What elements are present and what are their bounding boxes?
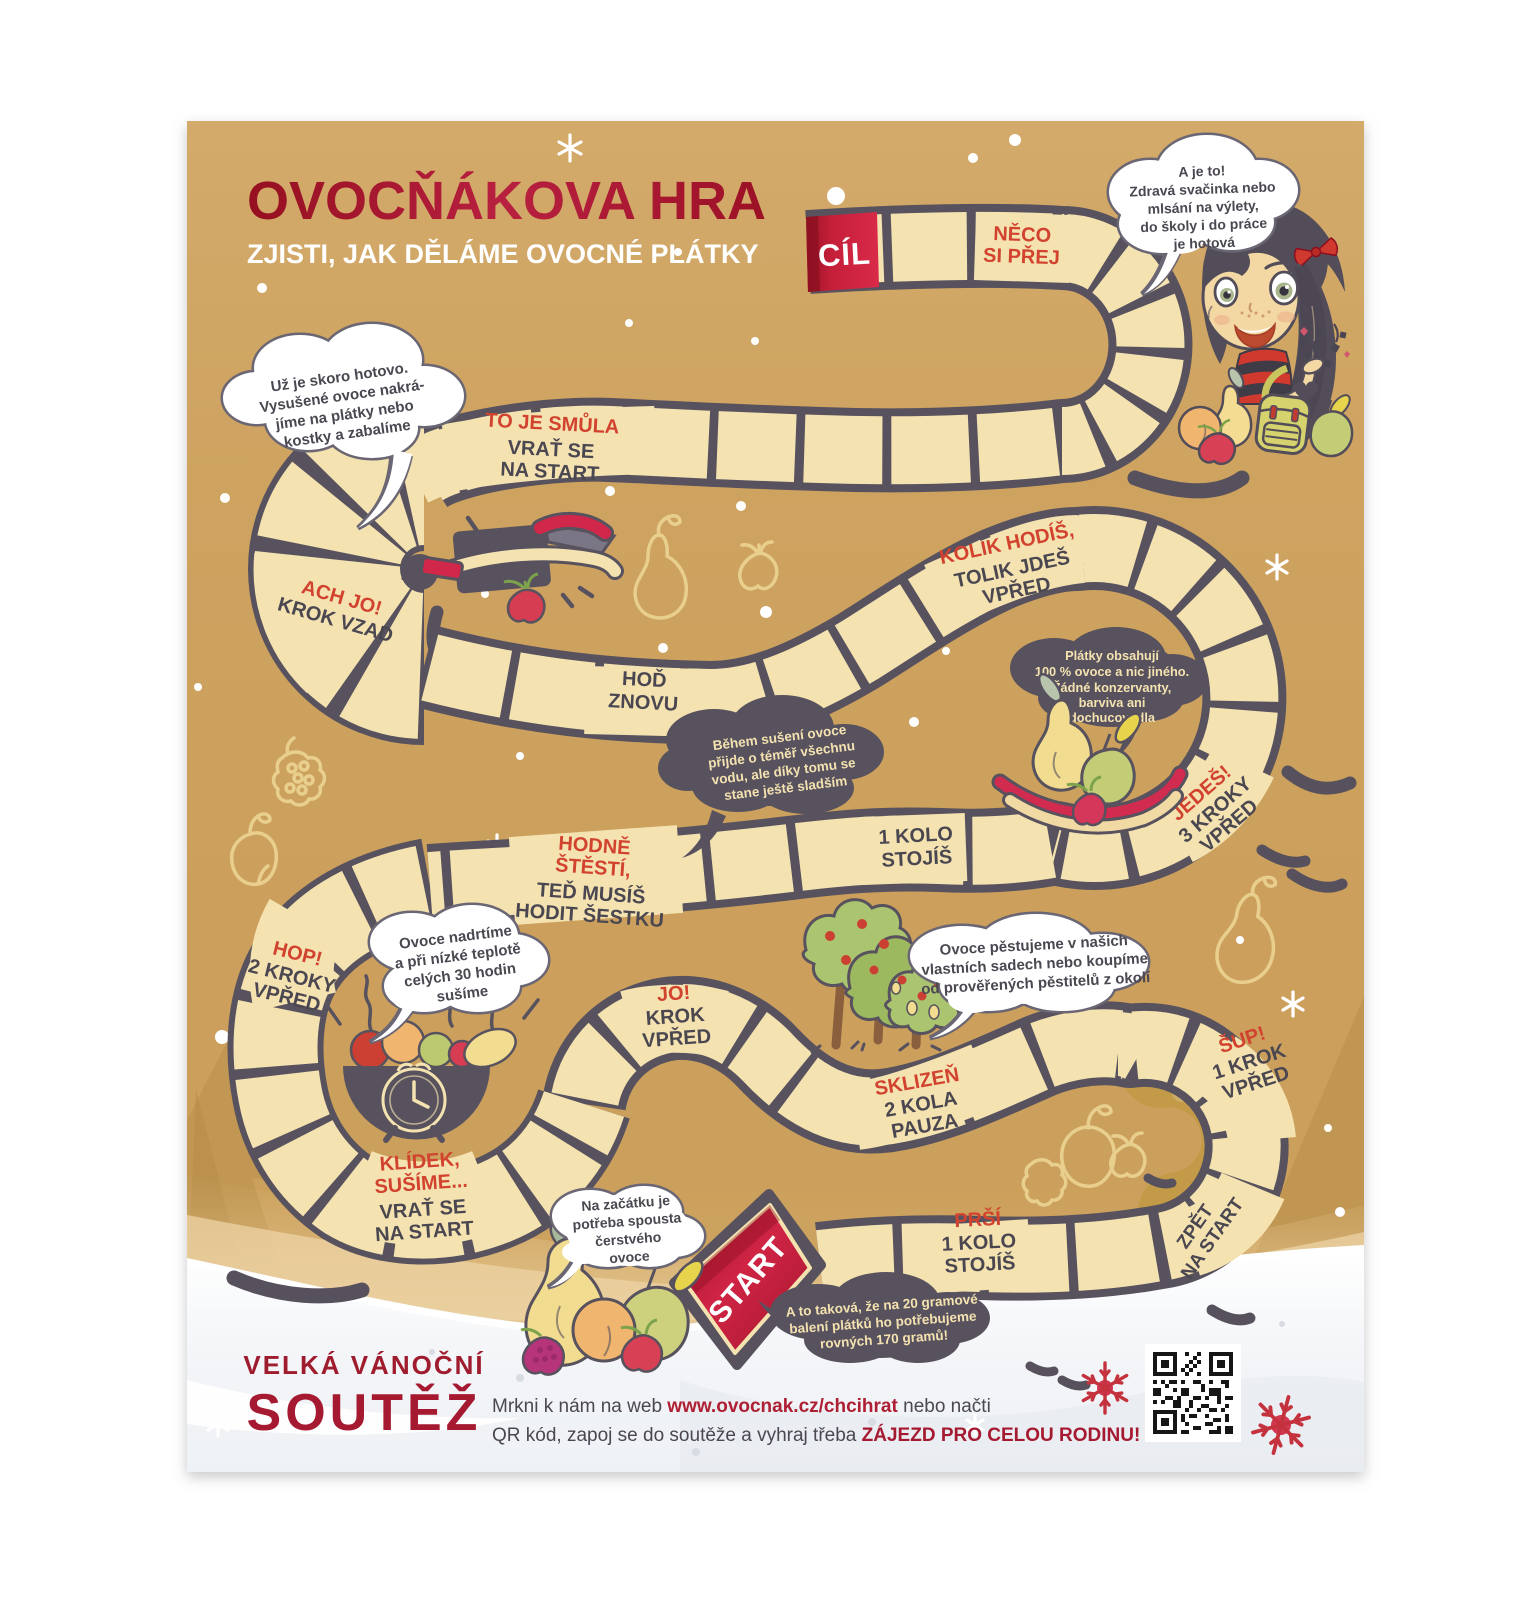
svg-text:Žádné konzervanty,: Žádné konzervanty, bbox=[1053, 680, 1172, 695]
svg-text:ZNOVU: ZNOVU bbox=[608, 690, 679, 716]
svg-text:SOUTĚŽ: SOUTĚŽ bbox=[247, 1383, 482, 1442]
svg-text:ZJISTI, JAK DĚLÁME OVOCNÉ PLÁT: ZJISTI, JAK DĚLÁME OVOCNÉ PLÁTKY bbox=[247, 238, 759, 269]
svg-text:NĚCO: NĚCO bbox=[993, 221, 1052, 247]
svg-text:Mrkni k nám na web www.ovocnak: Mrkni k nám na web www.ovocnak.cz/chcihr… bbox=[492, 1396, 991, 1417]
svg-text:100 % ovoce a nic jiného.: 100 % ovoce a nic jiného. bbox=[1035, 664, 1189, 679]
svg-text:QR kód, zapoj se do soutěže a: QR kód, zapoj se do soutěže a vyhraj tře… bbox=[492, 1424, 1140, 1446]
svg-text:dochucovadla: dochucovadla bbox=[1069, 710, 1156, 725]
svg-text:barviva ani: barviva ani bbox=[1079, 695, 1146, 710]
svg-text:SI PŘEJ: SI PŘEJ bbox=[983, 243, 1060, 270]
svg-text:VELKÁ VÁNOČNÍ: VELKÁ VÁNOČNÍ bbox=[243, 1350, 484, 1380]
svg-text:PRŠÍ: PRŠÍ bbox=[954, 1206, 1002, 1232]
svg-text:Plátky obsahují: Plátky obsahují bbox=[1065, 648, 1159, 663]
svg-text:1 KOLO: 1 KOLO bbox=[878, 823, 954, 849]
svg-text:JO!: JO! bbox=[656, 982, 691, 1006]
svg-text:HOĎ: HOĎ bbox=[622, 666, 668, 692]
svg-text:CÍL: CÍL bbox=[817, 236, 872, 274]
svg-text:je hotová: je hotová bbox=[1172, 234, 1235, 252]
svg-text:A je to!: A je to! bbox=[1178, 162, 1225, 180]
svg-text:ovoce: ovoce bbox=[609, 1247, 651, 1266]
svg-text:OVOCŇÁKOVA HRA: OVOCŇÁKOVA HRA bbox=[247, 170, 766, 231]
